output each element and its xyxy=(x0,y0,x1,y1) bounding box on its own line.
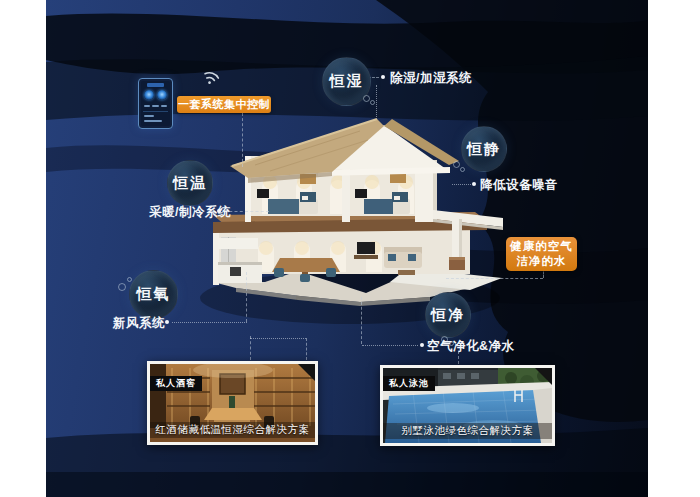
deco-bubble xyxy=(453,161,460,168)
connector-quiet-note xyxy=(452,184,471,185)
infographic-stage: 一套系统集中控制 恒湿 恒静 恒温 恒氧 恒净 除湿/加湿系统 降低设备噪音 采… xyxy=(0,0,700,497)
pool-card: 私人泳池 别墅泳池绿色综合解决方案 xyxy=(380,365,555,446)
deco-bubble xyxy=(363,95,370,102)
bubble-temperature: 恒温 xyxy=(167,160,213,206)
phone-stat-row xyxy=(152,105,159,107)
connector-humidity-to-roof xyxy=(376,85,377,117)
phone-screen xyxy=(141,81,170,126)
phone-list-row xyxy=(144,115,154,117)
bullet-oxygen xyxy=(165,320,169,324)
connector-button-to-house xyxy=(242,113,243,167)
connector-purity-note xyxy=(362,345,418,346)
connector-wine-left xyxy=(250,336,251,360)
wine-cellar-tag: 私人酒窖 xyxy=(150,376,202,391)
note-purity: 空气净化&净水 xyxy=(427,338,515,355)
healthy-air-water-box: 健康的空气 洁净的水 xyxy=(506,237,577,271)
phone-divider xyxy=(143,111,168,112)
wine-cellar-card: 私人酒窖 红酒储藏低温恒湿综合解决方案 xyxy=(147,361,318,445)
wine-cellar-caption: 红酒储藏低温恒湿综合解决方案 xyxy=(150,422,315,438)
bubble-quiet: 恒静 xyxy=(461,126,507,172)
deco-bubble xyxy=(127,277,132,282)
bubble-oxygen: 恒氧 xyxy=(129,270,178,319)
connector-wine-horizontal xyxy=(250,338,306,339)
pool-corner-ribbon xyxy=(535,368,552,385)
deco-bubble xyxy=(118,283,126,291)
note-quiet: 降低设备噪音 xyxy=(480,177,558,194)
note-humidity: 除湿/加湿系统 xyxy=(390,70,472,87)
phone-dial-right xyxy=(157,90,167,100)
highlight-line1: 健康的空气 xyxy=(510,239,573,254)
phone-dial-left xyxy=(144,90,154,100)
deco-bubble xyxy=(370,100,375,105)
wine-corner-ribbon xyxy=(298,364,315,381)
bullet-quiet xyxy=(472,182,476,186)
phone-app-header xyxy=(147,83,164,87)
connector-oxygen-to-house xyxy=(246,272,247,322)
deco-bubble xyxy=(460,167,465,172)
bullet-temperature xyxy=(217,209,221,213)
connector-wine-right xyxy=(306,338,307,360)
central-control-button: 一套系统集中控制 xyxy=(177,96,271,113)
connector-oxygen-note xyxy=(172,322,247,323)
pool-caption: 别墅泳池绿色综合解决方案 xyxy=(383,423,552,439)
connector-purity-to-house xyxy=(361,297,362,344)
bullet-humidity xyxy=(381,75,385,79)
phone-stat-row xyxy=(161,105,167,107)
phone-list-row xyxy=(144,120,162,122)
highlight-line2: 洁净的水 xyxy=(517,254,567,269)
phone-stat-row xyxy=(144,105,150,107)
bubble-purity: 恒净 xyxy=(425,292,471,338)
pool-tag: 私人泳池 xyxy=(383,376,435,391)
connector-highlight-horizontal xyxy=(446,278,543,279)
note-oxygen: 新风系统 xyxy=(113,315,165,332)
smartphone-controller xyxy=(138,78,173,129)
bullet-purity xyxy=(420,343,424,347)
